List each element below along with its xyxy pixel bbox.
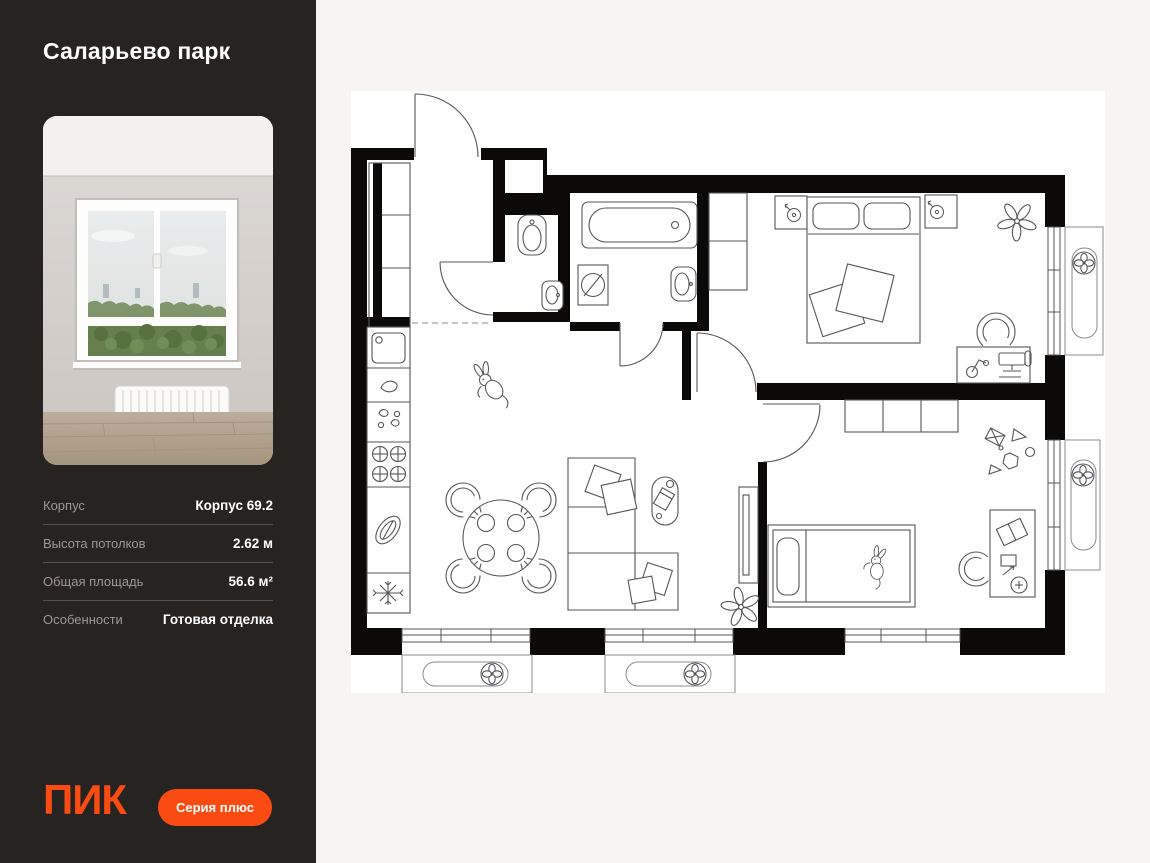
photo-ceiling [43, 116, 273, 176]
doors [415, 94, 820, 462]
ac-unit-right-2 [1065, 440, 1100, 570]
spec-value: Корпус 69.2 [195, 498, 273, 513]
window-living-2 [605, 629, 733, 642]
single-bed [768, 525, 915, 607]
spec-label: Высота потолков [43, 536, 146, 551]
sidebar: Саларьево парк [0, 0, 316, 863]
kids-room [768, 400, 1035, 607]
plant-icon [993, 196, 1043, 247]
kids-desk [990, 510, 1035, 597]
spec-value: 2.62 м [233, 536, 273, 551]
bedroom-door [697, 333, 756, 392]
main-area [316, 0, 1150, 863]
window-bedroom-right [1048, 227, 1060, 355]
photo-window [73, 198, 241, 370]
sink-basin-icon [371, 512, 405, 548]
faucet-icon [378, 410, 399, 428]
lamp-icon [785, 204, 801, 222]
spec-row-ceiling-height: Высота потолков 2.62 м [43, 525, 273, 563]
ac-unit-bottom-2 [605, 655, 735, 693]
kids-room-door [763, 404, 820, 462]
photo-floor [43, 412, 273, 465]
lamp-icon [928, 201, 944, 219]
room-window-photo [43, 116, 273, 465]
bathroom [578, 202, 697, 305]
fan-icon [1072, 464, 1094, 486]
spec-row-total-area: Общая площадь 56.6 м² [43, 563, 273, 601]
bath-sink-icon [671, 267, 696, 301]
ac-unit-right-1 [1065, 227, 1103, 355]
dining-table [446, 483, 556, 593]
window-kids-bottom [845, 629, 960, 642]
fan-icon [481, 663, 503, 685]
closet [709, 193, 747, 290]
spec-label: Общая площадь [43, 574, 143, 589]
pik-logo: ПИК [43, 778, 126, 822]
bedroom [709, 193, 1043, 383]
bathroom-door [620, 323, 663, 366]
spec-value: 56.6 м² [228, 574, 273, 589]
desk [957, 347, 1031, 383]
floor-plan [351, 91, 1105, 693]
fridge-snowflake-icon [373, 581, 403, 605]
wc-sink-icon [542, 281, 563, 310]
brand-bar: ПИК Серия плюс [43, 784, 273, 828]
kitchen-sink-icon [372, 333, 405, 363]
window-living-1 [402, 629, 530, 642]
apartment-photo [43, 116, 273, 465]
fan-icon [684, 663, 706, 685]
nightstand-left [775, 196, 807, 229]
spec-row-features: Особенности Готовая отделка [43, 601, 273, 638]
wardrobe [845, 400, 958, 432]
fan-icon [1073, 252, 1095, 274]
spec-label: Особенности [43, 612, 123, 627]
deco-bunny-icon [471, 358, 510, 414]
living-room [412, 323, 768, 634]
ac-unit-bottom-1 [402, 655, 532, 693]
hob-icon [373, 447, 406, 482]
toys-icons [985, 428, 1034, 474]
spec-list: Корпус Корпус 69.2 Высота потолков 2.62 … [43, 487, 273, 638]
spec-row-korpus: Корпус Корпус 69.2 [43, 487, 273, 525]
ac-units [402, 227, 1103, 693]
double-bed [807, 197, 920, 343]
series-plus-badge[interactable]: Серия плюс [158, 789, 272, 826]
project-title: Саларьево парк [43, 38, 293, 65]
windows [402, 227, 1060, 642]
spec-value: Готовая отделка [163, 612, 273, 627]
wc-room [518, 215, 563, 310]
tv-stand [739, 487, 758, 583]
washing-machine-icon [578, 265, 608, 305]
floor-plan-drawing [351, 91, 1105, 693]
spec-label: Корпус [43, 498, 85, 513]
wc-door [440, 262, 493, 315]
toilet-icon [518, 215, 546, 255]
entry-door [415, 94, 478, 157]
nightstand-right [925, 195, 957, 228]
bathtub-icon [582, 202, 697, 248]
cutting-board-icon [381, 381, 397, 391]
pouf [652, 477, 678, 525]
window-kids-right [1048, 440, 1060, 570]
